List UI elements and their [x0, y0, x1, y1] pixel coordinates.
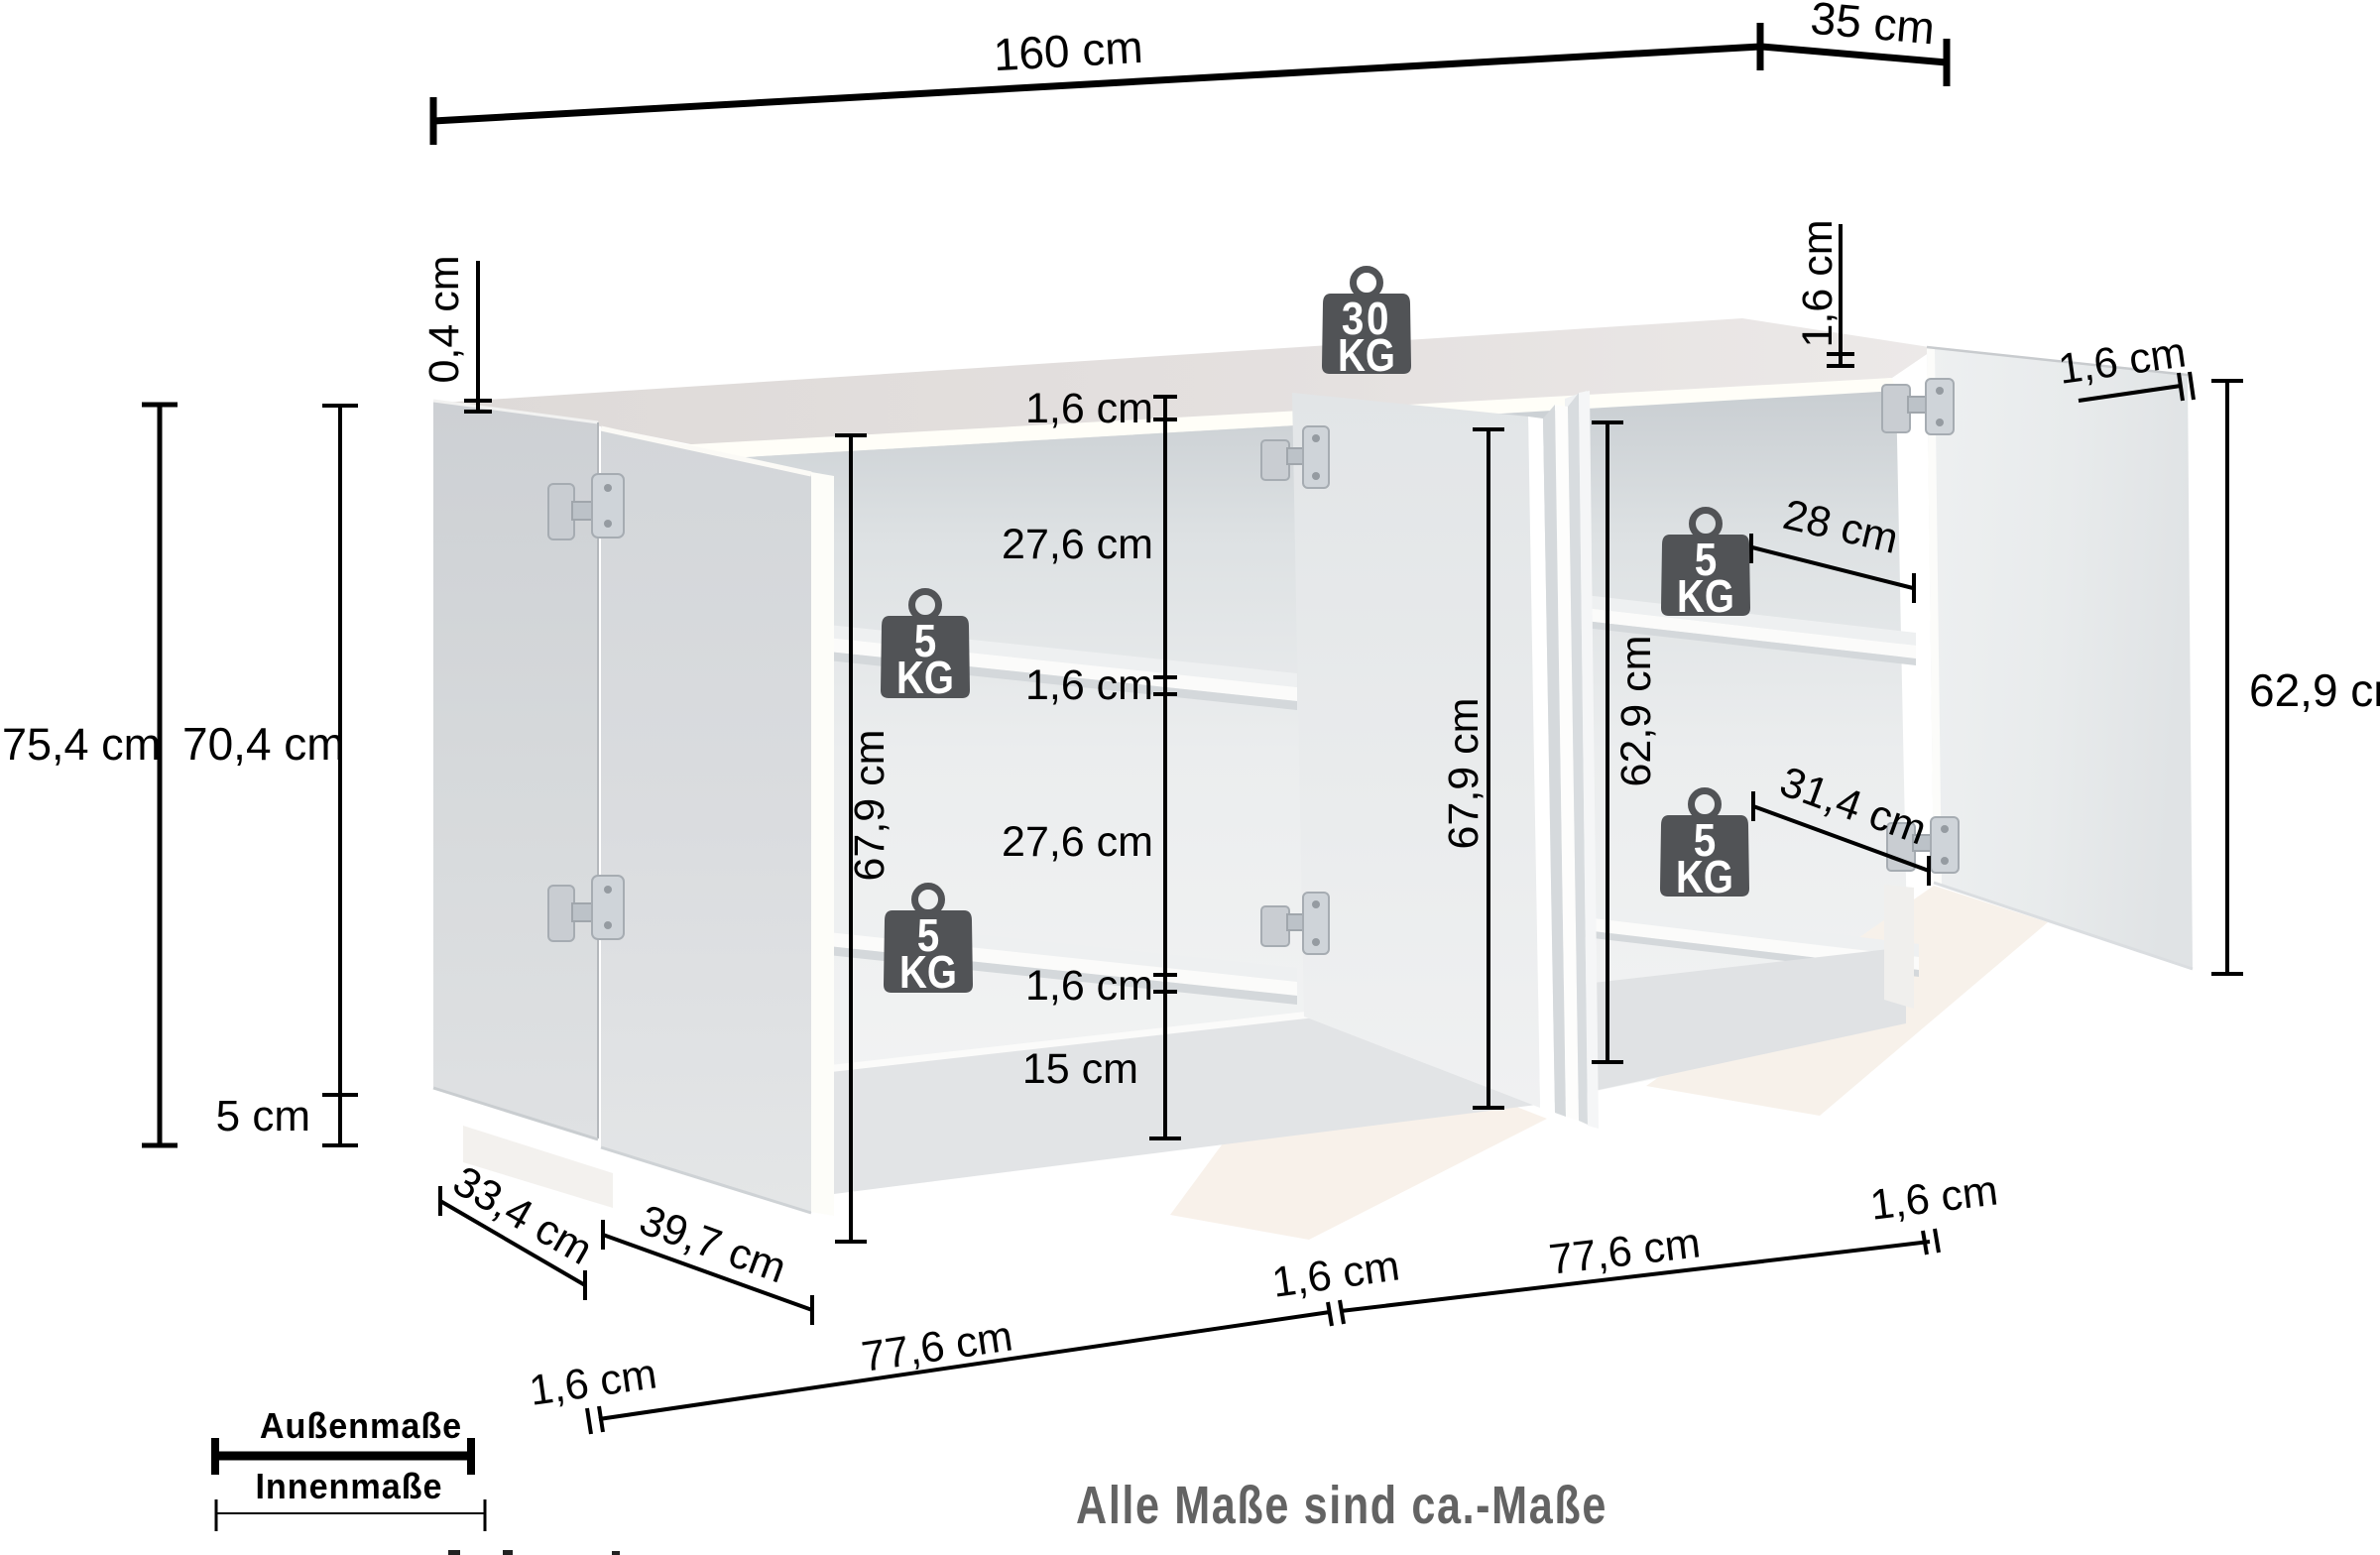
svg-text:27,6 cm: 27,6 cm: [1002, 818, 1153, 866]
svg-text:KG: KG: [896, 653, 954, 703]
svg-text:67,9 cm: 67,9 cm: [1440, 698, 1487, 850]
svg-text:39,7 cm: 39,7 cm: [634, 1196, 792, 1292]
svg-text:1,6 cm: 1,6 cm: [1794, 219, 1842, 347]
svg-text:67,9 cm: 67,9 cm: [846, 730, 893, 882]
svg-text:77,6 cm: 77,6 cm: [1547, 1219, 1704, 1284]
svg-text:1,6 cm: 1,6 cm: [1867, 1166, 2000, 1229]
svg-text:1,6 cm: 1,6 cm: [527, 1350, 659, 1414]
svg-text:75,4 cm: 75,4 cm: [2, 719, 161, 770]
svg-text:62,9 cm: 62,9 cm: [1612, 636, 1660, 787]
svg-text:70,4 cm: 70,4 cm: [182, 718, 345, 770]
svg-text:0,4 cm: 0,4 cm: [420, 255, 468, 383]
svg-text:1,6 cm: 1,6 cm: [1025, 385, 1153, 432]
svg-text:KG: KG: [1676, 852, 1733, 902]
svg-text:KG: KG: [899, 947, 957, 998]
svg-text:1,6 cm: 1,6 cm: [1269, 1242, 1402, 1306]
svg-text:Außenmaße: Außenmaße: [260, 1406, 462, 1446]
svg-text:Alle Maße sind ca.-Maße: Alle Maße sind ca.-Maße: [1076, 1477, 1607, 1536]
svg-text:62,9 cm: 62,9 cm: [2249, 664, 2380, 716]
svg-text:5 cm: 5 cm: [216, 1092, 310, 1140]
svg-text:Innenmaße: Innenmaße: [255, 1467, 442, 1506]
svg-text:27,6 cm: 27,6 cm: [1002, 521, 1153, 568]
svg-text:15 cm: 15 cm: [1022, 1045, 1138, 1093]
svg-text:1,6 cm: 1,6 cm: [1025, 661, 1153, 709]
svg-text:160 cm: 160 cm: [992, 21, 1144, 80]
svg-text:KG: KG: [1338, 330, 1395, 381]
svg-text:1,6 cm: 1,6 cm: [1025, 962, 1153, 1010]
svg-text:35 cm: 35 cm: [1809, 0, 1937, 54]
svg-text:KG: KG: [1677, 571, 1734, 622]
